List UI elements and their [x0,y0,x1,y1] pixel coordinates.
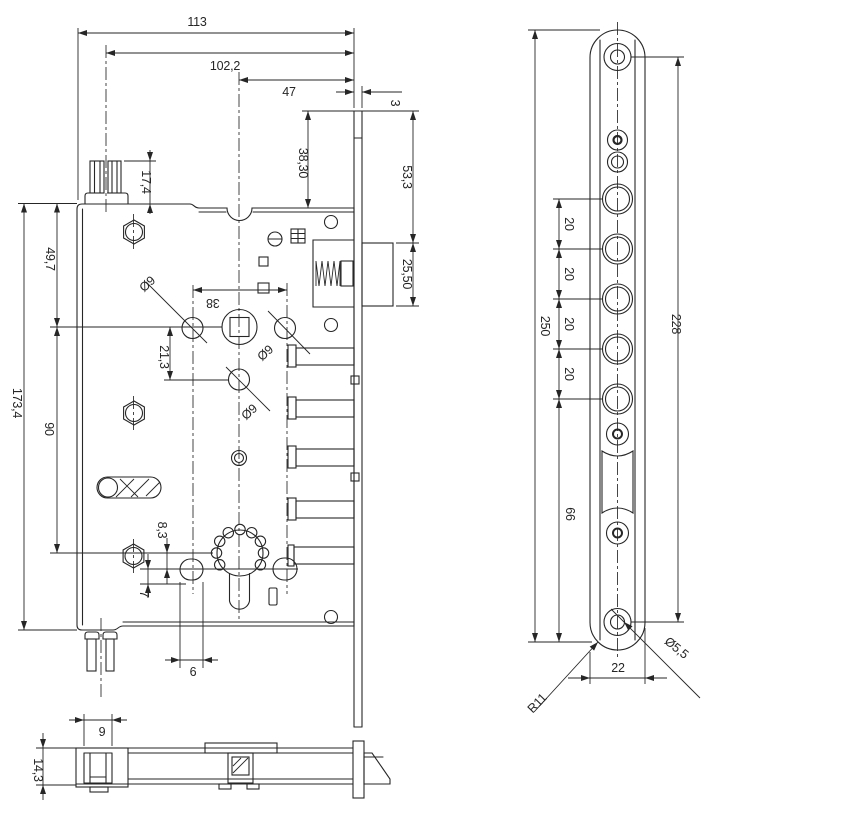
dim-22: 22 [611,661,625,675]
faceplate-edge [354,111,362,727]
dim-6: 6 [190,665,197,679]
small-square-b [258,283,269,293]
dim-228: 228 [669,314,683,335]
technical-drawing-page: 113 102,2 47 3 38,30 53,3 25,50 [0,0,847,816]
small-slot-bottom [269,588,277,605]
spring-coil [316,261,340,286]
deadbolt-3 [296,449,354,466]
latch-spring-assembly [313,240,354,307]
front-view-dimensions: 113 102,2 47 3 38,30 53,3 25,50 [10,15,419,679]
small-square-a [259,257,268,266]
dim-66: 66 [563,507,577,521]
faceplate-dimensions: 250 20 20 20 20 66 228 [525,30,700,716]
side-faceplate [353,741,364,798]
dim-20-2: 20 [562,267,576,281]
dim-9: 9 [99,725,106,739]
euro-cylinder-opening [211,524,268,609]
hatched-slot [97,477,161,498]
adjuster-box [291,229,305,243]
top-stud [85,161,128,204]
side-latch-bolt [364,753,390,784]
deadbolt-4 [296,501,354,518]
dim-113: 113 [187,15,207,29]
dim-17-4: 17,4 [139,170,153,194]
plate-lug-a [351,376,359,384]
oval-slot-left [180,559,203,580]
side-view: 9 14,3 [31,714,390,800]
hex-nut-middle [124,401,145,425]
latch-bolt-head [362,243,393,306]
deadbolt-1 [296,348,354,365]
dim-8-3: 8,3 [155,522,169,539]
dim-173-4: 173,4 [10,388,24,419]
dim-3: 3 [388,100,402,107]
dim-250: 250 [538,316,552,337]
side-stud-foot [90,787,108,792]
bottom-stud-cap-right [103,632,117,639]
dim-7: 7 [137,591,151,598]
bottom-stud-rail-left [87,639,96,671]
dim-53-3: 53,3 [400,165,414,189]
dim-38: 38 [206,296,220,310]
hex-nut-top [124,220,145,244]
top-stud-rail-right [108,161,121,193]
cylinder-keyway-stem [230,574,250,610]
small-hole-a [325,216,338,229]
dim-r11: R11 [525,690,550,715]
faceplate-view: 250 20 20 20 20 66 228 [525,22,700,716]
dim-o9-right: Ø9 [255,342,277,363]
top-stud-foot [85,193,128,204]
small-hole-b [325,319,338,332]
spindle-square-hole [230,318,249,337]
deadbolts [288,345,359,566]
follower-circle [222,310,257,345]
dim-49-7: 49,7 [43,247,57,271]
deadbolt-5 [294,547,354,564]
top-stud-rail-left [90,161,104,193]
follower-hub [222,310,257,345]
bottom-stud-rail-right [106,639,114,671]
dim-21-3: 21,3 [157,345,171,369]
slotted-screw [268,232,282,246]
dim-47: 47 [282,85,296,99]
lock-drawing-svg: 113 102,2 47 3 38,30 53,3 25,50 [0,0,847,816]
dim-o9-bottom: Ø9 [239,401,261,422]
dim-38-30: 38,30 [296,148,310,179]
side-profile-body [76,741,390,798]
dim-25-50: 25,50 [400,259,414,290]
dim-20-4: 20 [562,367,576,381]
spring-plunger [341,261,353,286]
deadbolt-2 [296,400,354,417]
plate-lug-b [351,473,359,481]
front-view: 113 102,2 47 3 38,30 53,3 25,50 [10,15,419,727]
dim-14-3: 14,3 [31,758,45,782]
dim-102-2: 102,2 [210,59,241,73]
dim-o5-5: Ø5,5 [662,634,691,662]
dim-20-3: 20 [562,317,576,331]
front-view-centerlines [101,45,287,698]
dim-20-1: 20 [562,217,576,231]
bottom-stud-cap-left [85,632,99,639]
latch-opening [602,451,633,513]
dim-90: 90 [42,422,56,436]
